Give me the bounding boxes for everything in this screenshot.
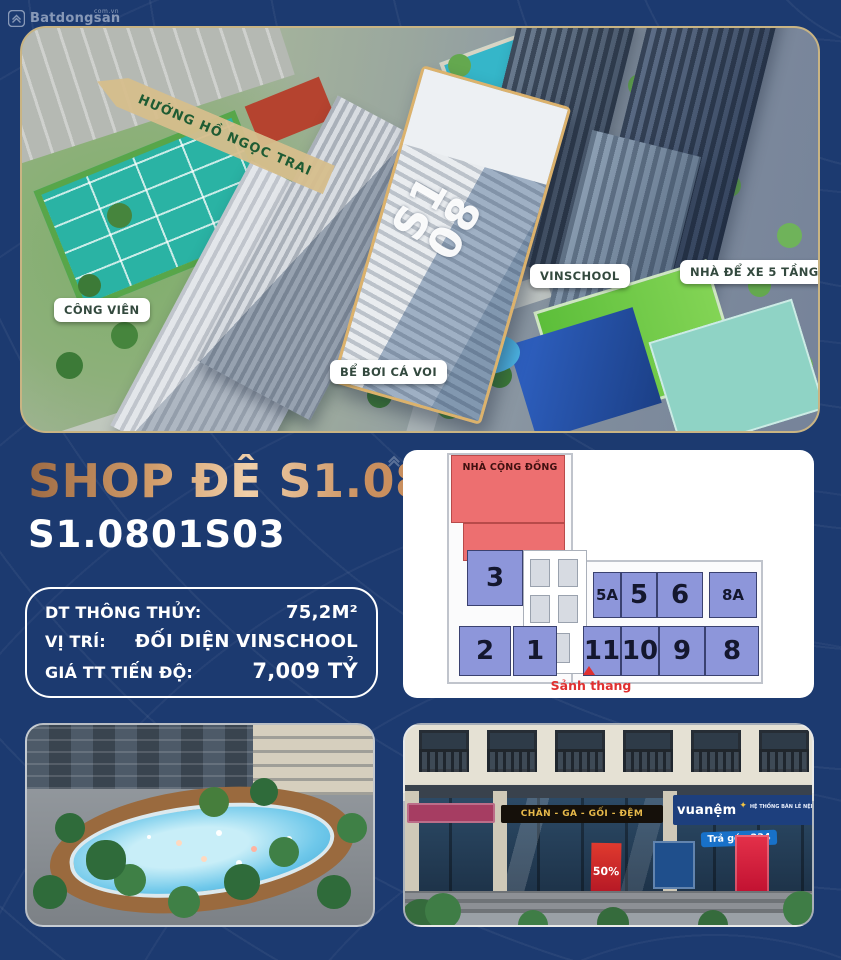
watermark: Batdongsan com.vn (8, 10, 120, 27)
shop-unit-5: 5 (621, 572, 657, 618)
map-tag-whale-pool: BỂ BƠI CÁ VOI (330, 360, 447, 384)
map-tag-parking-garage: NHÀ ĐỂ XE 5 TẦNG (680, 260, 820, 284)
star-icon: ✦ (739, 801, 747, 811)
shop-unit-6: 6 (657, 572, 703, 618)
watermark-mini-icon (383, 450, 405, 476)
pool-render-photo (25, 723, 375, 927)
palm-trees (27, 725, 41, 739)
shop-unit-9: 9 (659, 626, 705, 676)
trees (22, 28, 37, 43)
vuanem-slogan: HỆ THỐNG BÁN LẺ NỆM & CHĂN GA GỐI (750, 804, 814, 810)
window-poster-red (735, 835, 769, 895)
floorplan-card: NHÀ CỘNG ĐỒNG 3 2 1 5A 5 6 8A 11 10 9 8 … (403, 450, 814, 698)
spec-label-area: DT THÔNG THỦY: (45, 603, 201, 622)
storefront-photo: CHĂN - GA - GỐI - ĐỆM vuanệm ✦ HỆ THỐNG … (403, 723, 814, 927)
pink-shop-sign (407, 803, 495, 823)
shop-unit-8: 8 (705, 626, 759, 676)
upper-window (623, 730, 673, 772)
shop-unit-5a: 5A (593, 572, 621, 618)
spec-row-area: DT THÔNG THỦY: 75,2M² (45, 602, 358, 623)
vuanem-phone: 1800 2092 (750, 811, 814, 817)
community-house-label: NHÀ CỘNG ĐỒNG (459, 462, 561, 473)
vuanem-brand: vuanệm (677, 803, 736, 818)
map-tag-park: CÔNG VIÊN (54, 298, 150, 322)
shop-unit-3: 3 (467, 550, 523, 606)
spec-value-price: 7,009 TỶ (252, 659, 358, 683)
lobby-label: Sảnh thang (531, 678, 651, 693)
shop-unit-2: 2 (459, 626, 511, 676)
upper-window (487, 730, 537, 772)
map-tag-vinschool: VINSCHOOL (530, 264, 630, 288)
vuanem-slogan-block: HỆ THỐNG BÁN LẺ NỆM & CHĂN GA GỐI 1800 2… (750, 804, 814, 817)
elevator (558, 595, 578, 623)
shop-unit-1: 1 (513, 626, 557, 676)
vuanem-shop-sign: vuanệm ✦ HỆ THỐNG BÁN LẺ NỆM & CHĂN GA G… (673, 795, 814, 825)
spec-value-location: ĐỐI DIỆN VINSCHOOL (135, 631, 358, 652)
spec-row-price: GIÁ TT TIẾN ĐỘ: 7,009 TỶ (45, 659, 358, 683)
spec-value-area: 75,2M² (286, 602, 358, 623)
elevator (558, 559, 578, 587)
watermark-suffix: com.vn (94, 8, 119, 15)
upper-window (419, 730, 469, 772)
aerial-masterplan-photo: S1 08 HƯỚNG HỒ NGỌC TRAI CÔNG VIÊN BỂ BƠ… (20, 26, 820, 433)
window-poster-blue (653, 841, 695, 889)
swimmers (147, 835, 151, 839)
sidewalk (405, 913, 814, 927)
spec-card: DT THÔNG THỦY: 75,2M² VỊ TRÍ: ĐỐI DIỆN V… (25, 587, 378, 698)
spec-label-location: VỊ TRÍ: (45, 632, 106, 651)
bedding-shop-sign: CHĂN - GA - GỐI - ĐỆM (501, 805, 663, 823)
elevator (530, 595, 550, 623)
page-title: SHOP ĐẾ S1.08 (28, 454, 428, 508)
spec-row-location: VỊ TRÍ: ĐỐI DIỆN VINSCHOOL (45, 631, 358, 652)
apartment-facade-right (253, 725, 373, 795)
entrance-steps (405, 891, 814, 913)
apartment-facade (27, 725, 287, 789)
upper-window (759, 730, 809, 772)
lobby-arrow-icon (583, 666, 595, 675)
upper-window (555, 730, 605, 772)
spec-label-price: GIÁ TT TIẾN ĐỘ: (45, 663, 193, 682)
real-estate-poster: Batdongsan com.vn S1 08 HƯỚNG HỒ NGỌC TR… (0, 0, 841, 960)
shop-unit-8a: 8A (709, 572, 757, 618)
batdongsan-logo-icon (8, 10, 25, 27)
upper-window (691, 730, 741, 772)
shop-unit-10: 10 (621, 626, 659, 676)
bushes (405, 725, 421, 741)
elevator (530, 559, 550, 587)
unit-code: S1.0801S03 (28, 513, 286, 556)
